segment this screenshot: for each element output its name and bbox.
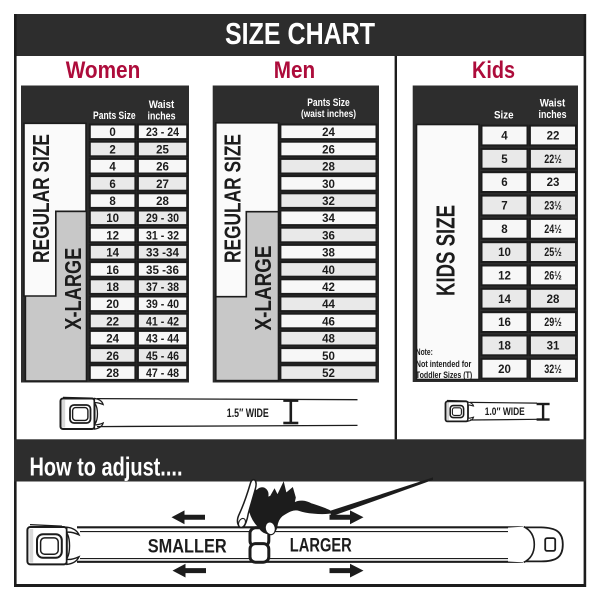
svg-text:25½: 25½ <box>544 247 562 259</box>
svg-text:(waist inches): (waist inches) <box>301 109 356 120</box>
svg-text:24: 24 <box>106 334 119 346</box>
svg-text:1.5″ WIDE: 1.5″ WIDE <box>227 406 269 420</box>
svg-text:X-LARGE: X-LARGE <box>250 246 276 331</box>
svg-text:5: 5 <box>501 154 508 166</box>
svg-text:33 -34: 33 -34 <box>146 248 180 260</box>
svg-text:28: 28 <box>322 162 335 174</box>
svg-text:6: 6 <box>501 177 507 189</box>
svg-text:18: 18 <box>106 282 119 294</box>
svg-text:31 - 32: 31 - 32 <box>146 230 179 242</box>
svg-text:24: 24 <box>322 127 335 139</box>
svg-text:14: 14 <box>106 248 119 260</box>
svg-text:Waist: Waist <box>149 99 175 111</box>
svg-text:8: 8 <box>109 196 116 208</box>
svg-text:20: 20 <box>498 364 511 376</box>
svg-text:16: 16 <box>106 265 119 277</box>
svg-text:27: 27 <box>156 179 169 191</box>
svg-text:14: 14 <box>498 294 511 306</box>
svg-text:LARGER: LARGER <box>290 536 352 557</box>
svg-text:10: 10 <box>498 247 511 259</box>
svg-text:38: 38 <box>322 248 335 260</box>
svg-text:39 - 40: 39 - 40 <box>146 299 179 311</box>
svg-text:31: 31 <box>547 340 560 352</box>
svg-text:41 - 42: 41 - 42 <box>146 316 179 328</box>
svg-text:inches: inches <box>539 109 567 121</box>
svg-text:36: 36 <box>322 230 335 242</box>
svg-text:6: 6 <box>109 179 115 191</box>
svg-text:KIDS SIZE: KIDS SIZE <box>431 205 461 296</box>
svg-text:32½: 32½ <box>544 364 562 376</box>
svg-text:Kids: Kids <box>472 57 515 84</box>
svg-text:29 - 30: 29 - 30 <box>146 213 179 225</box>
svg-text:43 - 44: 43 - 44 <box>146 334 180 346</box>
svg-text:8: 8 <box>501 224 508 236</box>
svg-text:46: 46 <box>322 316 335 328</box>
svg-text:2: 2 <box>109 144 115 156</box>
svg-text:45 - 46: 45 - 46 <box>146 351 179 363</box>
svg-text:28: 28 <box>547 294 560 306</box>
svg-text:23½: 23½ <box>544 201 562 213</box>
svg-text:0: 0 <box>109 127 115 139</box>
svg-text:30: 30 <box>322 179 335 191</box>
svg-text:26: 26 <box>322 144 335 156</box>
svg-text:Waist: Waist <box>540 97 566 109</box>
svg-text:Pants Size: Pants Size <box>93 110 136 122</box>
svg-text:32: 32 <box>322 196 335 208</box>
svg-text:28: 28 <box>156 196 169 208</box>
svg-text:25: 25 <box>156 144 169 156</box>
svg-text:22: 22 <box>547 131 560 143</box>
svg-text:22½: 22½ <box>544 154 562 166</box>
svg-text:50: 50 <box>322 351 335 363</box>
svg-text:Pants Size: Pants Size <box>307 97 350 109</box>
svg-text:48: 48 <box>322 334 335 346</box>
svg-text:37 - 38: 37 - 38 <box>146 282 180 294</box>
svg-text:47 - 48: 47 - 48 <box>146 368 180 380</box>
svg-text:Not intended for: Not intended for <box>416 359 472 369</box>
svg-text:24½: 24½ <box>544 224 562 236</box>
svg-text:23: 23 <box>547 177 560 189</box>
svg-text:SIZE CHART: SIZE CHART <box>225 16 375 51</box>
svg-text:44: 44 <box>322 299 335 311</box>
svg-text:12: 12 <box>106 230 119 242</box>
svg-text:SMALLER: SMALLER <box>148 537 227 558</box>
svg-text:10: 10 <box>106 213 119 225</box>
svg-text:Men: Men <box>274 57 315 84</box>
svg-text:40: 40 <box>322 265 335 277</box>
svg-text:16: 16 <box>498 317 511 329</box>
svg-text:18: 18 <box>498 340 511 352</box>
svg-text:20: 20 <box>106 299 119 311</box>
svg-text:26: 26 <box>156 162 169 174</box>
svg-text:Toddler Sizes (T): Toddler Sizes (T) <box>416 370 473 380</box>
svg-text:REGULAR SIZE: REGULAR SIZE <box>28 134 54 263</box>
svg-text:4: 4 <box>109 162 116 174</box>
svg-text:12: 12 <box>498 271 511 283</box>
svg-text:Women: Women <box>66 57 141 84</box>
svg-text:X-LARGE: X-LARGE <box>60 248 86 330</box>
svg-text:29½: 29½ <box>544 317 562 329</box>
svg-text:REGULAR SIZE: REGULAR SIZE <box>220 134 246 263</box>
svg-text:7: 7 <box>501 201 507 213</box>
svg-text:26: 26 <box>106 351 119 363</box>
svg-text:How to adjust....: How to adjust.... <box>30 452 183 482</box>
svg-text:Size: Size <box>494 110 514 122</box>
svg-text:inches: inches <box>148 111 176 123</box>
svg-text:23 - 24: 23 - 24 <box>146 127 180 139</box>
svg-text:52: 52 <box>322 368 335 380</box>
svg-text:1.0″ WIDE: 1.0″ WIDE <box>485 406 525 418</box>
svg-text:28: 28 <box>106 368 119 380</box>
svg-text:Note:: Note: <box>416 347 433 357</box>
svg-text:22: 22 <box>106 316 119 328</box>
svg-text:35 -36: 35 -36 <box>146 265 179 277</box>
svg-text:4: 4 <box>501 131 508 143</box>
svg-text:26½: 26½ <box>544 271 562 283</box>
svg-text:34: 34 <box>322 213 335 225</box>
svg-text:42: 42 <box>322 282 335 294</box>
